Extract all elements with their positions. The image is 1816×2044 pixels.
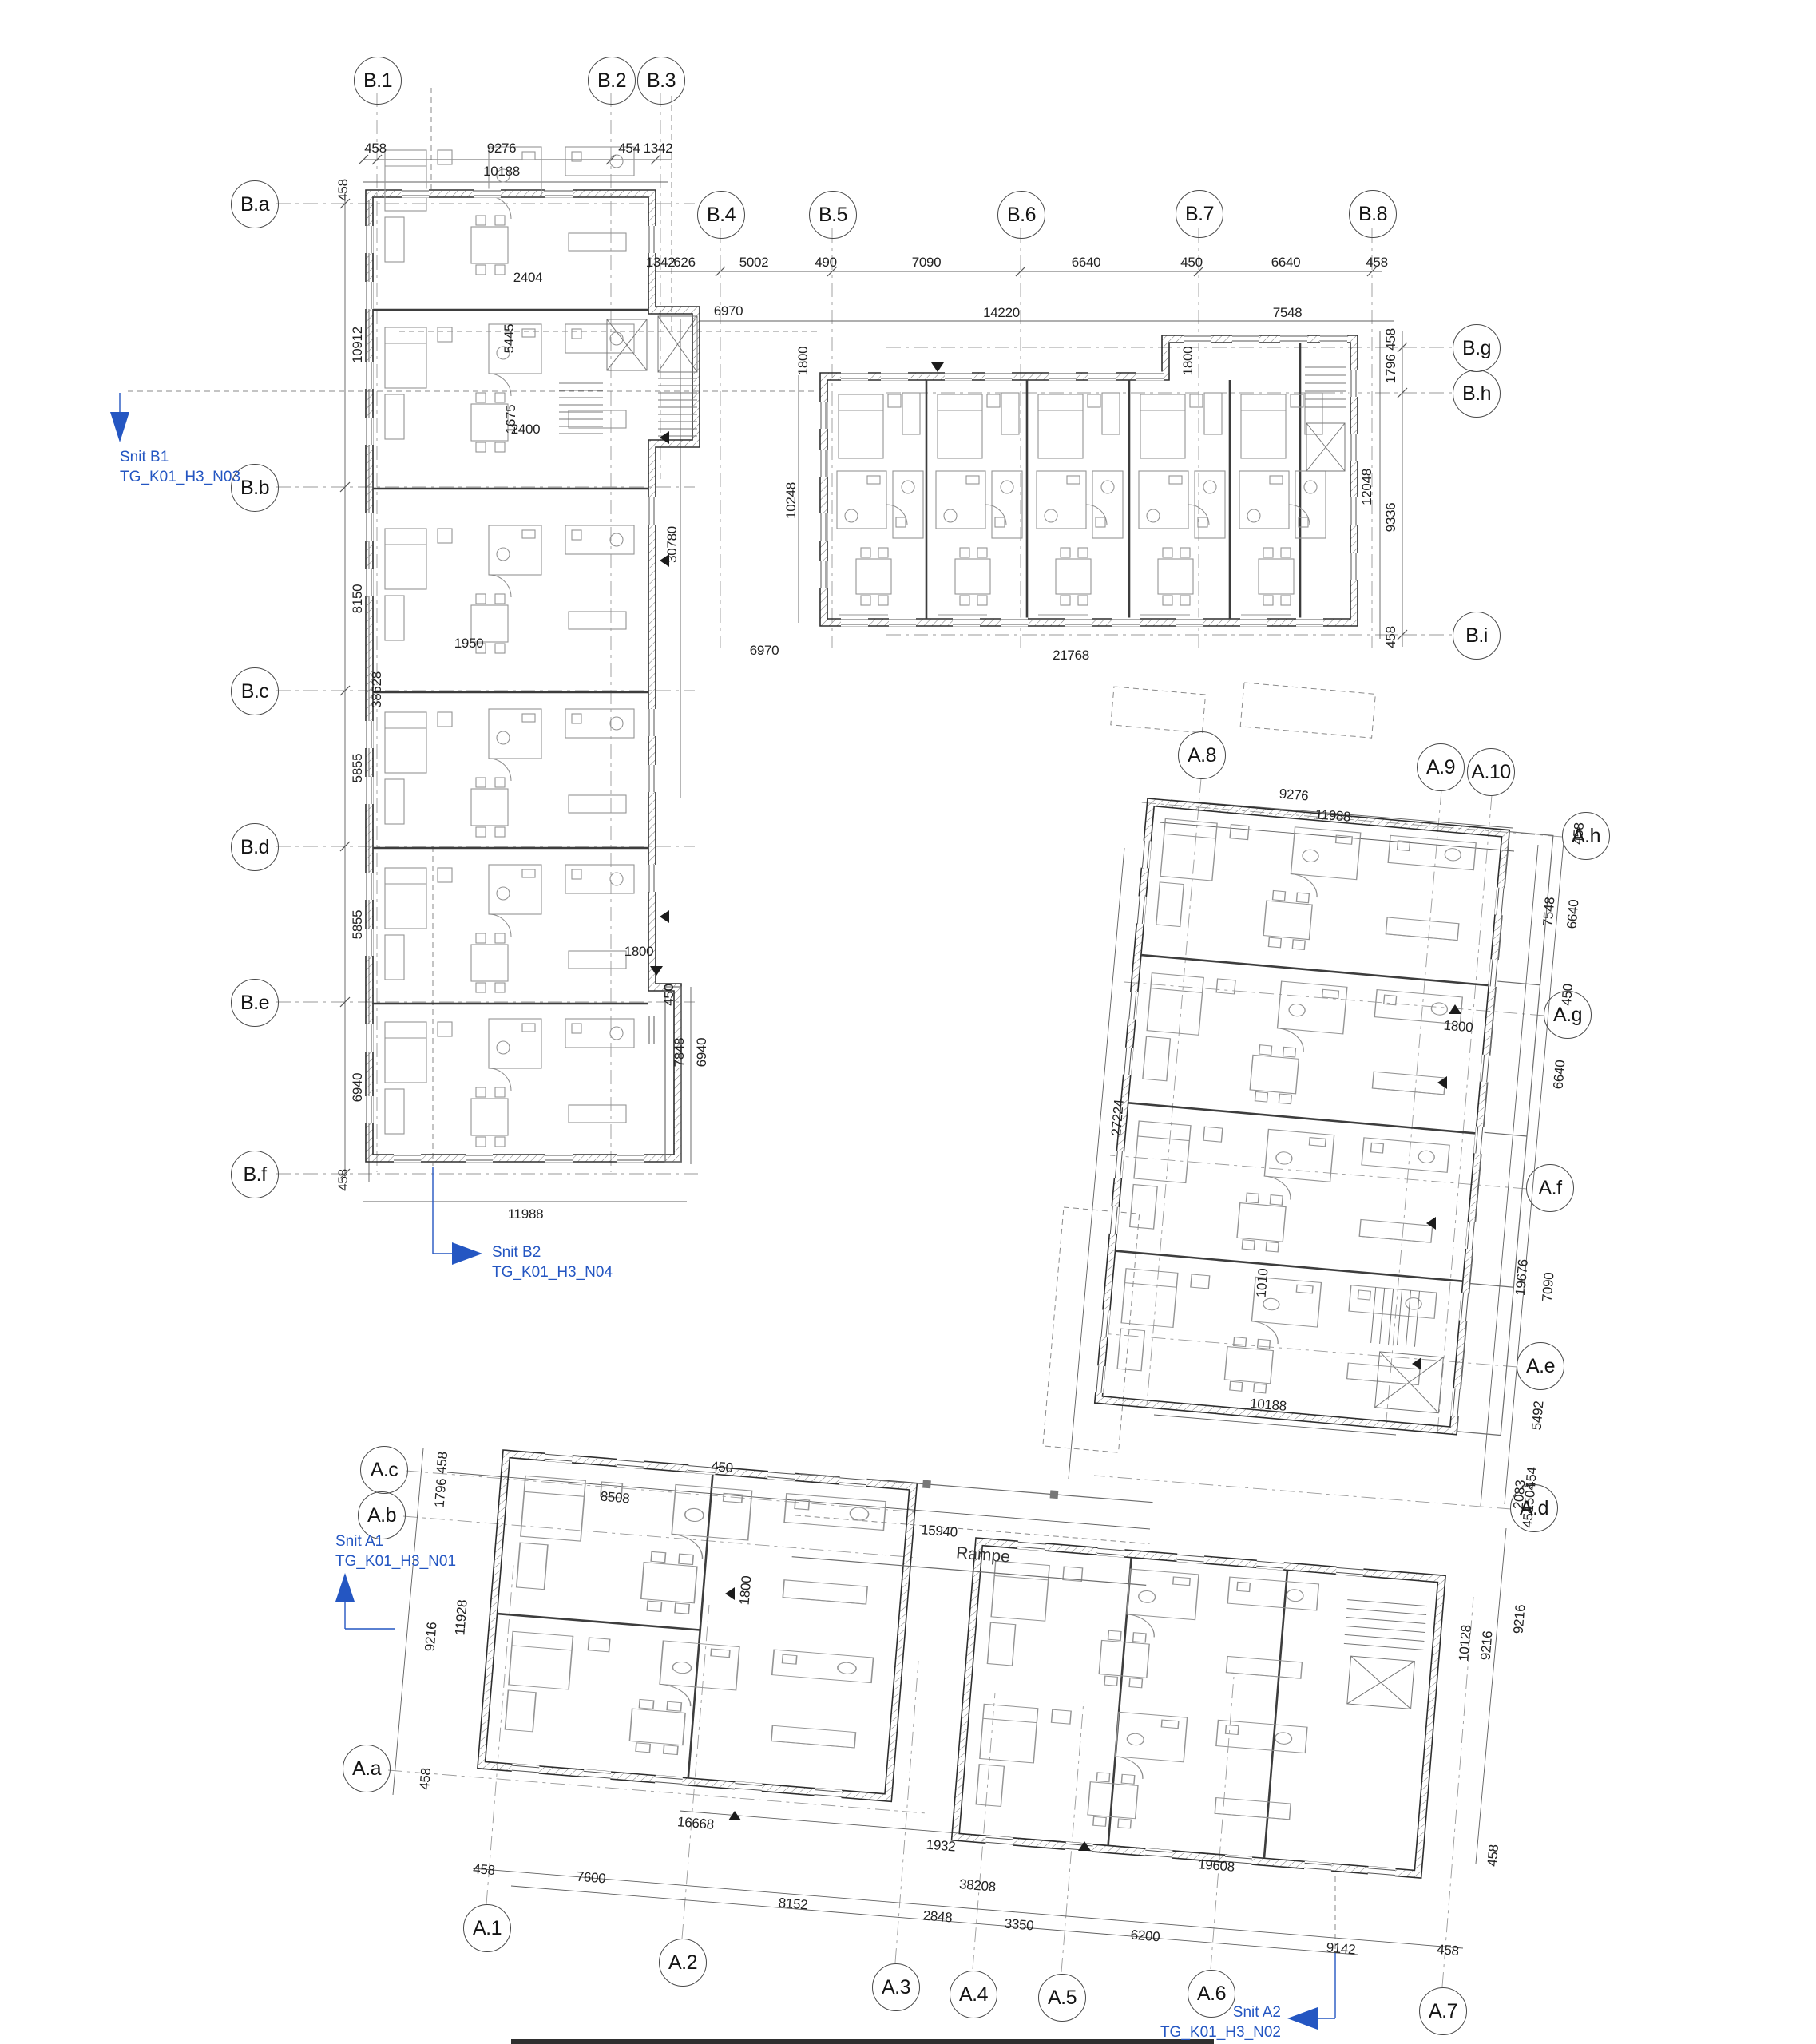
dimension-label: 8508 xyxy=(600,1489,630,1507)
dimension-label: 6640 xyxy=(1072,255,1101,271)
grid-bubble-b-7: B.7 xyxy=(1176,190,1223,238)
grid-bubble-b-h: B.h xyxy=(1453,370,1501,418)
grid-bubble-b-8: B.8 xyxy=(1349,190,1397,238)
grid-bubble-a-a: A.a xyxy=(343,1745,391,1792)
dimension-label: 458 xyxy=(1383,626,1399,648)
dimension-label: 8152 xyxy=(778,1895,808,1914)
dimension-label: 6640 xyxy=(1564,899,1583,929)
grid-bubble-a-4: A.4 xyxy=(950,1971,997,2018)
grid-bubble-b-5: B.5 xyxy=(809,191,857,239)
dimension-label: 458 xyxy=(335,179,351,200)
dimension-label: 2848 xyxy=(922,1908,953,1927)
dimension-label: 7090 xyxy=(1540,1272,1558,1302)
dimension-label: 27224 xyxy=(1108,1099,1128,1136)
dimension-label: 1796 xyxy=(432,1478,450,1508)
dimension-label: 458 xyxy=(1437,1942,1460,1959)
dimension-label: 21768 xyxy=(1053,648,1089,664)
dimension-label: 7548 xyxy=(1273,305,1303,321)
grid-bubble-a-2: A.2 xyxy=(659,1939,707,1987)
dimension-label: 5855 xyxy=(350,754,366,783)
grid-bubble-b-f: B.f xyxy=(231,1151,279,1198)
dimension-label: 6940 xyxy=(350,1073,366,1103)
dimension-label: 1010 xyxy=(1254,1268,1272,1298)
dimension-label: 9216 xyxy=(1478,1630,1497,1661)
dimension-label: 7848 xyxy=(672,1038,688,1068)
dimension-label: 6200 xyxy=(1130,1927,1160,1946)
dimension-label: 7548 xyxy=(1540,897,1559,927)
dimension-label: 2404 xyxy=(513,270,543,286)
grid-bubble-b-e: B.e xyxy=(231,979,279,1027)
dimension-label: 9216 xyxy=(422,1622,441,1652)
grid-bubble-a-5: A.5 xyxy=(1038,1974,1086,2022)
grid-bubble-a-f: A.f xyxy=(1526,1164,1574,1212)
section-label: Snit A1 xyxy=(335,1531,456,1551)
dimension-label: 458 xyxy=(417,1768,434,1791)
dimension-label: 1342 xyxy=(644,141,673,156)
dimension-label: 38208 xyxy=(958,1876,996,1895)
dimension-label: 458 xyxy=(434,1452,451,1475)
dimension-label: 458 xyxy=(1485,1844,1502,1868)
dimension-label: 450 xyxy=(661,984,677,1005)
dimension-label: 450 xyxy=(711,1459,734,1476)
dimension-label: 1800 xyxy=(795,347,811,376)
dimension-label: 10248 xyxy=(783,482,799,519)
dimension-label: 458 xyxy=(1570,822,1588,846)
dimension-label: 1800 xyxy=(624,944,654,960)
grid-bubble-a-8: A.8 xyxy=(1178,731,1226,779)
grid-bubble-b-4: B.4 xyxy=(697,191,745,239)
dimension-label: 454 xyxy=(1520,1506,1537,1529)
dimension-label: 15940 xyxy=(920,1522,958,1541)
grid-bubble-a-1: A.1 xyxy=(463,1904,511,1952)
dimension-label: 3350 xyxy=(1004,1916,1034,1935)
dimension-label: 11988 xyxy=(508,1206,544,1222)
dimension-label: 1932 xyxy=(926,1837,956,1856)
grid-bubble-b-g: B.g xyxy=(1453,324,1501,372)
section-reference: TG_K01_H3_N03 xyxy=(120,467,240,487)
grid-bubble-a-3: A.3 xyxy=(872,1963,920,2011)
dimension-label: 1796 xyxy=(1383,355,1399,384)
dimension-label: 10912 xyxy=(350,327,366,363)
grid-bubble-b-a: B.a xyxy=(231,180,279,228)
dimension-label: 7090 xyxy=(912,255,942,271)
dimension-label: 6640 xyxy=(1271,255,1301,271)
annotation-layer: B.1B.2B.3B.4B.5B.6B.7B.8B.aB.bB.cB.dB.eB… xyxy=(0,0,1816,2044)
dimension-label: 450 xyxy=(1559,984,1576,1007)
dimension-label: 6970 xyxy=(750,643,779,659)
dimension-label: 6970 xyxy=(714,303,743,319)
dimension-label: 9216 xyxy=(1511,1604,1529,1634)
grid-bubble-b-1: B.1 xyxy=(354,57,402,105)
section-reference: TG_K01_H3_N02 xyxy=(1160,2022,1281,2042)
grid-bubble-b-c: B.c xyxy=(231,667,279,715)
dimension-label: 5445 xyxy=(502,324,517,354)
dimension-label: 9142 xyxy=(1326,1940,1356,1959)
dimension-label: 11928 xyxy=(452,1599,471,1636)
grid-bubble-b-6: B.6 xyxy=(997,191,1045,239)
section-label: Snit A2 xyxy=(1160,2002,1281,2022)
dimension-label: 10128 xyxy=(1456,1624,1475,1662)
dimension-label: 9276 xyxy=(487,141,517,156)
dimension-label: 2400 xyxy=(511,422,541,438)
dimension-label: 12048 xyxy=(1359,469,1375,505)
section-reference: TG_K01_H3_N04 xyxy=(492,1262,613,1282)
dimension-label: 1800 xyxy=(737,1575,755,1606)
dimension-label: 6640 xyxy=(1551,1060,1569,1090)
dimension-label: 454 xyxy=(618,141,640,156)
dimension-label: 10188 xyxy=(483,164,520,180)
section-marker-snit-a2: Snit A2TG_K01_H3_N02 xyxy=(1160,2002,1281,2042)
dimension-label: 9276 xyxy=(1279,786,1309,805)
grid-bubble-b-2: B.2 xyxy=(588,57,636,105)
dimension-label: 30780 xyxy=(664,526,680,563)
grid-bubble-a-c: A.c xyxy=(360,1446,408,1494)
dimension-label: 9336 xyxy=(1383,503,1399,533)
dimension-label: 38628 xyxy=(369,671,385,708)
grid-bubble-a-9: A.9 xyxy=(1417,743,1465,791)
section-marker-snit-b2: Snit B2TG_K01_H3_N04 xyxy=(492,1242,613,1282)
dimension-label: 458 xyxy=(364,141,386,156)
grid-bubble-a-10: A.10 xyxy=(1467,748,1515,796)
dimension-label: 14220 xyxy=(983,305,1020,321)
dimension-label: 8150 xyxy=(350,584,366,614)
dimension-label: 450 xyxy=(1180,255,1202,271)
section-marker-snit-a1: Snit A1TG_K01_H3_N01 xyxy=(335,1531,456,1571)
dimension-label: 490 xyxy=(815,255,836,271)
grid-bubble-b-i: B.i xyxy=(1453,612,1501,660)
label-rampe: Rampe xyxy=(955,1543,1010,1567)
dimension-label: 458 xyxy=(473,1861,496,1879)
dimension-label: 11988 xyxy=(1314,806,1351,826)
dimension-label: 1800 xyxy=(1180,347,1196,376)
grid-bubble-a-7: A.7 xyxy=(1419,1987,1467,2035)
dimension-label: 626 xyxy=(673,255,695,271)
dimension-label: 458 xyxy=(335,1169,351,1190)
section-label: Snit B1 xyxy=(120,447,240,467)
dimension-label: 1800 xyxy=(1443,1018,1473,1036)
dimension-label: 16668 xyxy=(676,1814,714,1833)
grid-bubble-b-d: B.d xyxy=(231,823,279,871)
dimension-label: 5002 xyxy=(739,255,769,271)
grid-bubble-a-e: A.e xyxy=(1517,1342,1564,1390)
dimension-label: 19608 xyxy=(1197,1856,1235,1876)
dimension-label: 6940 xyxy=(694,1038,710,1068)
dimension-label: 1950 xyxy=(454,636,484,652)
floor-plan-canvas: B.1B.2B.3B.4B.5B.6B.7B.8B.aB.bB.cB.dB.eB… xyxy=(0,0,1816,2044)
dimension-label: 458 xyxy=(1383,328,1399,350)
grid-bubble-b-3: B.3 xyxy=(637,57,685,105)
dimension-label: 5492 xyxy=(1529,1400,1548,1431)
section-marker-snit-b1: Snit B1TG_K01_H3_N03 xyxy=(120,447,240,487)
dimension-label: 10188 xyxy=(1249,1396,1287,1415)
dimension-label: 7600 xyxy=(576,1869,606,1888)
section-label: Snit B2 xyxy=(492,1242,613,1262)
dimension-label: 5855 xyxy=(350,910,366,940)
dimension-label: 458 xyxy=(1366,255,1387,271)
dimension-label: 19676 xyxy=(1513,1258,1532,1296)
dimension-label: 1342 xyxy=(646,255,676,271)
section-reference: TG_K01_H3_N01 xyxy=(335,1551,456,1571)
